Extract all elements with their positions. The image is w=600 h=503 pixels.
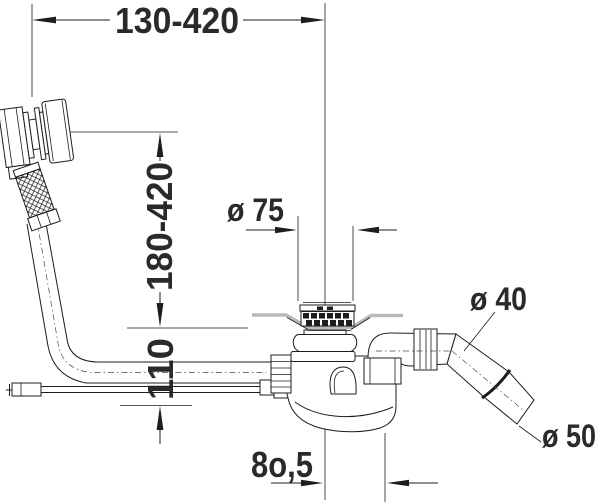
hose-corrugation [16, 169, 55, 218]
arrow-down-icon [157, 303, 164, 327]
arrow-left-icon [387, 480, 409, 486]
pipe-union [414, 329, 437, 370]
dim-outlet-offset-label: 8o,5 [251, 444, 313, 485]
control-cable [6, 383, 266, 396]
drain-tailpiece [291, 330, 357, 362]
label-dia50: ø 50 [542, 418, 596, 454]
arrow-up-icon [157, 133, 164, 157]
dim-trap-height-label: 110 [140, 338, 181, 400]
overflow-hose [11, 162, 60, 231]
tailpiece-nut [293, 335, 357, 352]
tailpiece-flange [291, 352, 355, 362]
label-outlet-pipe-dia: ø 40 [464, 281, 527, 351]
leader-line [464, 312, 495, 351]
outlet-45-pipe [447, 334, 534, 424]
arrow-up-icon [157, 406, 164, 430]
cable-end-connector [12, 383, 41, 396]
arrow-left-icon [32, 17, 56, 24]
arrow-left-icon [357, 227, 379, 233]
dim-drain-cover: ø 75 [227, 192, 397, 301]
drain-strainer [300, 303, 355, 327]
dim-top-span: 130-420 [32, 0, 325, 97]
drawing-canvas: 130-420 180-420 110 ø 75 8o,5 [0, 0, 600, 503]
label-dia40: ø 40 [470, 281, 527, 317]
strainer-plate-mark [317, 307, 323, 311]
dim-overflow-height-label: 180-420 [139, 162, 180, 291]
dim-overflow-height: 180-420 [63, 132, 180, 327]
outlet-union-nut [364, 358, 401, 384]
dim-outlet-offset: 8o,5 [251, 433, 438, 502]
dim-drain-cover-label: ø 75 [227, 192, 284, 228]
strainer-plate-mark [327, 307, 333, 311]
extension-lines [298, 216, 353, 301]
technical-drawing-page: 130-420 180-420 110 ø 75 8o,5 [0, 0, 600, 503]
dim-top-span-label: 130-420 [115, 0, 239, 41]
cable-end-tip [6, 384, 12, 396]
leader-line [519, 426, 541, 442]
label-outlet-end-dia: ø 50 [519, 418, 596, 454]
arrow-right-icon [301, 17, 325, 24]
